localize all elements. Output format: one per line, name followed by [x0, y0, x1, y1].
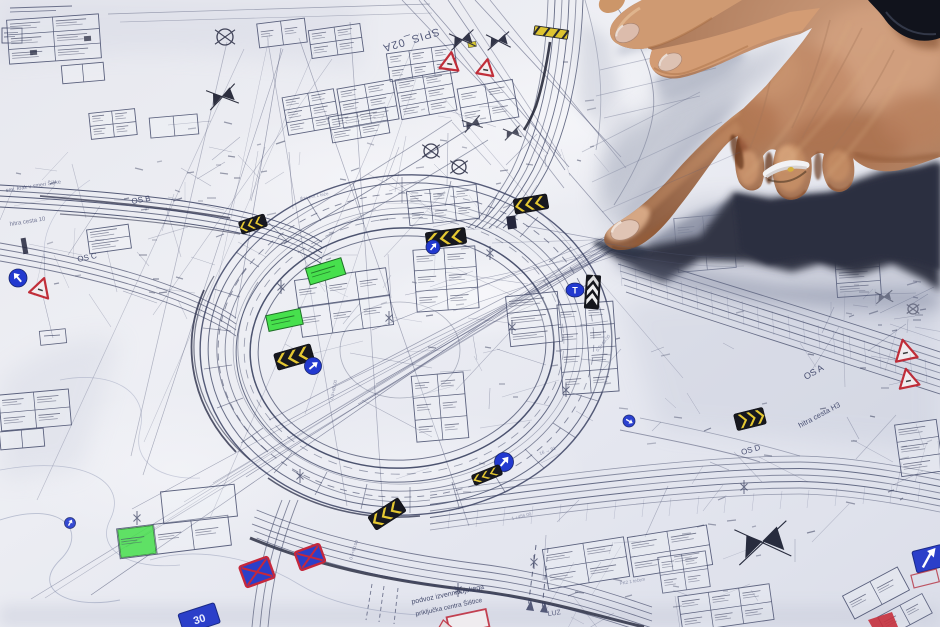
- svg-text:T: T: [572, 286, 578, 296]
